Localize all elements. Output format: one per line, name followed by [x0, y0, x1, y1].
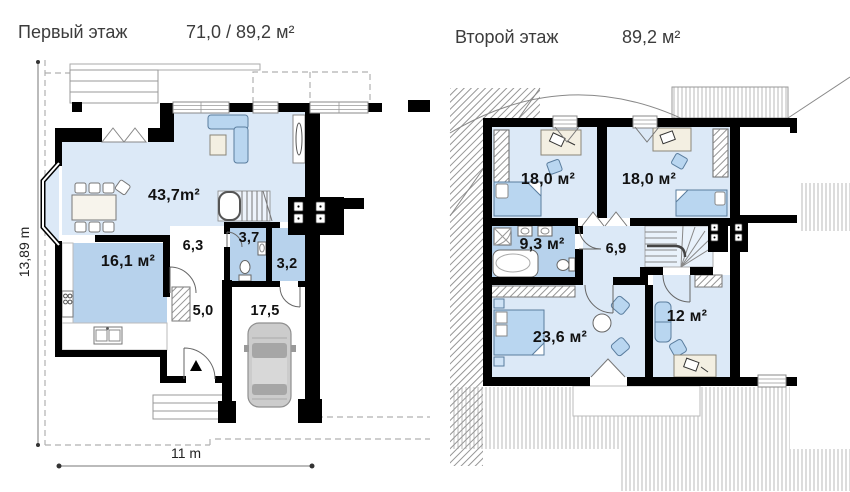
room-label-study: 12 м² — [667, 308, 707, 326]
floor2-title: Второй этаж — [455, 27, 558, 48]
round-table — [593, 314, 611, 332]
room-label-bath1: 3,7 — [239, 230, 260, 246]
staircase — [218, 191, 272, 221]
entry-steps — [153, 395, 227, 419]
pillow — [715, 192, 725, 205]
dormer — [573, 386, 700, 416]
terrace-steps — [70, 64, 260, 103]
room-label-garage: 17,5 — [250, 303, 279, 319]
coffee-table — [210, 135, 226, 155]
entry-wardrobe — [172, 287, 190, 321]
pantry-floor — [272, 228, 305, 281]
room-label-bedroom3: 23,6 м² — [533, 329, 587, 347]
toilet — [557, 260, 569, 271]
toilet-tank — [569, 258, 575, 271]
floor2-area: 89,2 м² — [622, 27, 680, 48]
pillow — [496, 184, 508, 198]
sofa — [234, 127, 248, 163]
room-label-kitchen: 16,1 м² — [101, 253, 155, 271]
room-label-bath2: 9,3 м² — [519, 236, 564, 254]
toilet — [240, 261, 250, 274]
floor1-plan — [10, 55, 440, 475]
car — [244, 323, 296, 407]
floor1-area: 71,0 / 89,2 м² — [186, 22, 294, 43]
floor2-plan — [445, 55, 850, 492]
room-label-entry: 5,0 — [193, 303, 214, 319]
stair-railing — [219, 192, 240, 220]
nightstand — [494, 299, 504, 308]
toilet-tank — [239, 275, 251, 281]
pillow — [496, 312, 507, 323]
room-label-hall1: 6,3 — [183, 238, 204, 254]
floor1-title: Первый этаж — [18, 22, 127, 43]
room-label-hall2: 6,9 — [606, 241, 627, 257]
room-label-bedroom2: 18,0 м² — [622, 171, 676, 189]
fireplace — [293, 115, 305, 163]
french-doors — [102, 128, 146, 142]
room-label-living: 43,7m² — [148, 187, 200, 205]
room-label-pantry: 3,2 — [277, 256, 298, 272]
dining-table — [72, 195, 116, 220]
pillow — [496, 325, 507, 336]
nightstand — [494, 357, 504, 366]
dimension-height: 13,89 m — [16, 227, 32, 278]
floor-plans-page: Первый этаж 71,0 / 89,2 м² Второй этаж 8… — [0, 0, 850, 492]
entrance-arrow — [190, 360, 202, 371]
dimension-width: 11 m — [171, 445, 201, 461]
room-label-bedroom1: 18,0 м² — [521, 171, 575, 189]
